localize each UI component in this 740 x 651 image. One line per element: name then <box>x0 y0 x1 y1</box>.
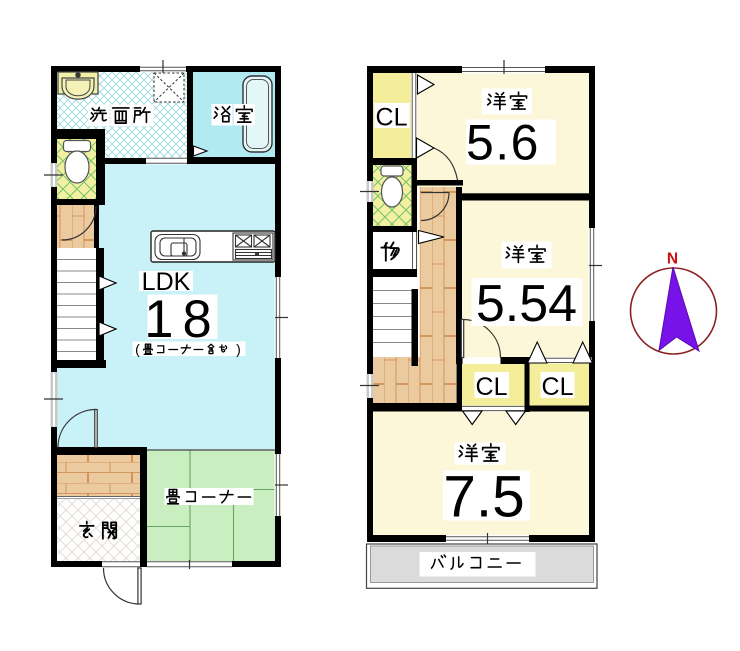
svg-text:CL: CL <box>476 373 508 401</box>
svg-text:CL: CL <box>376 104 408 132</box>
svg-text:18: 18 <box>144 290 220 349</box>
svg-text:CL: CL <box>542 373 574 401</box>
svg-text:5.54: 5.54 <box>476 275 577 333</box>
svg-text:): ) <box>236 341 241 357</box>
svg-text:N: N <box>667 251 678 268</box>
svg-text:7.5: 7.5 <box>443 465 524 530</box>
svg-text:5.6: 5.6 <box>466 115 540 171</box>
svg-text:(: ( <box>135 341 140 357</box>
